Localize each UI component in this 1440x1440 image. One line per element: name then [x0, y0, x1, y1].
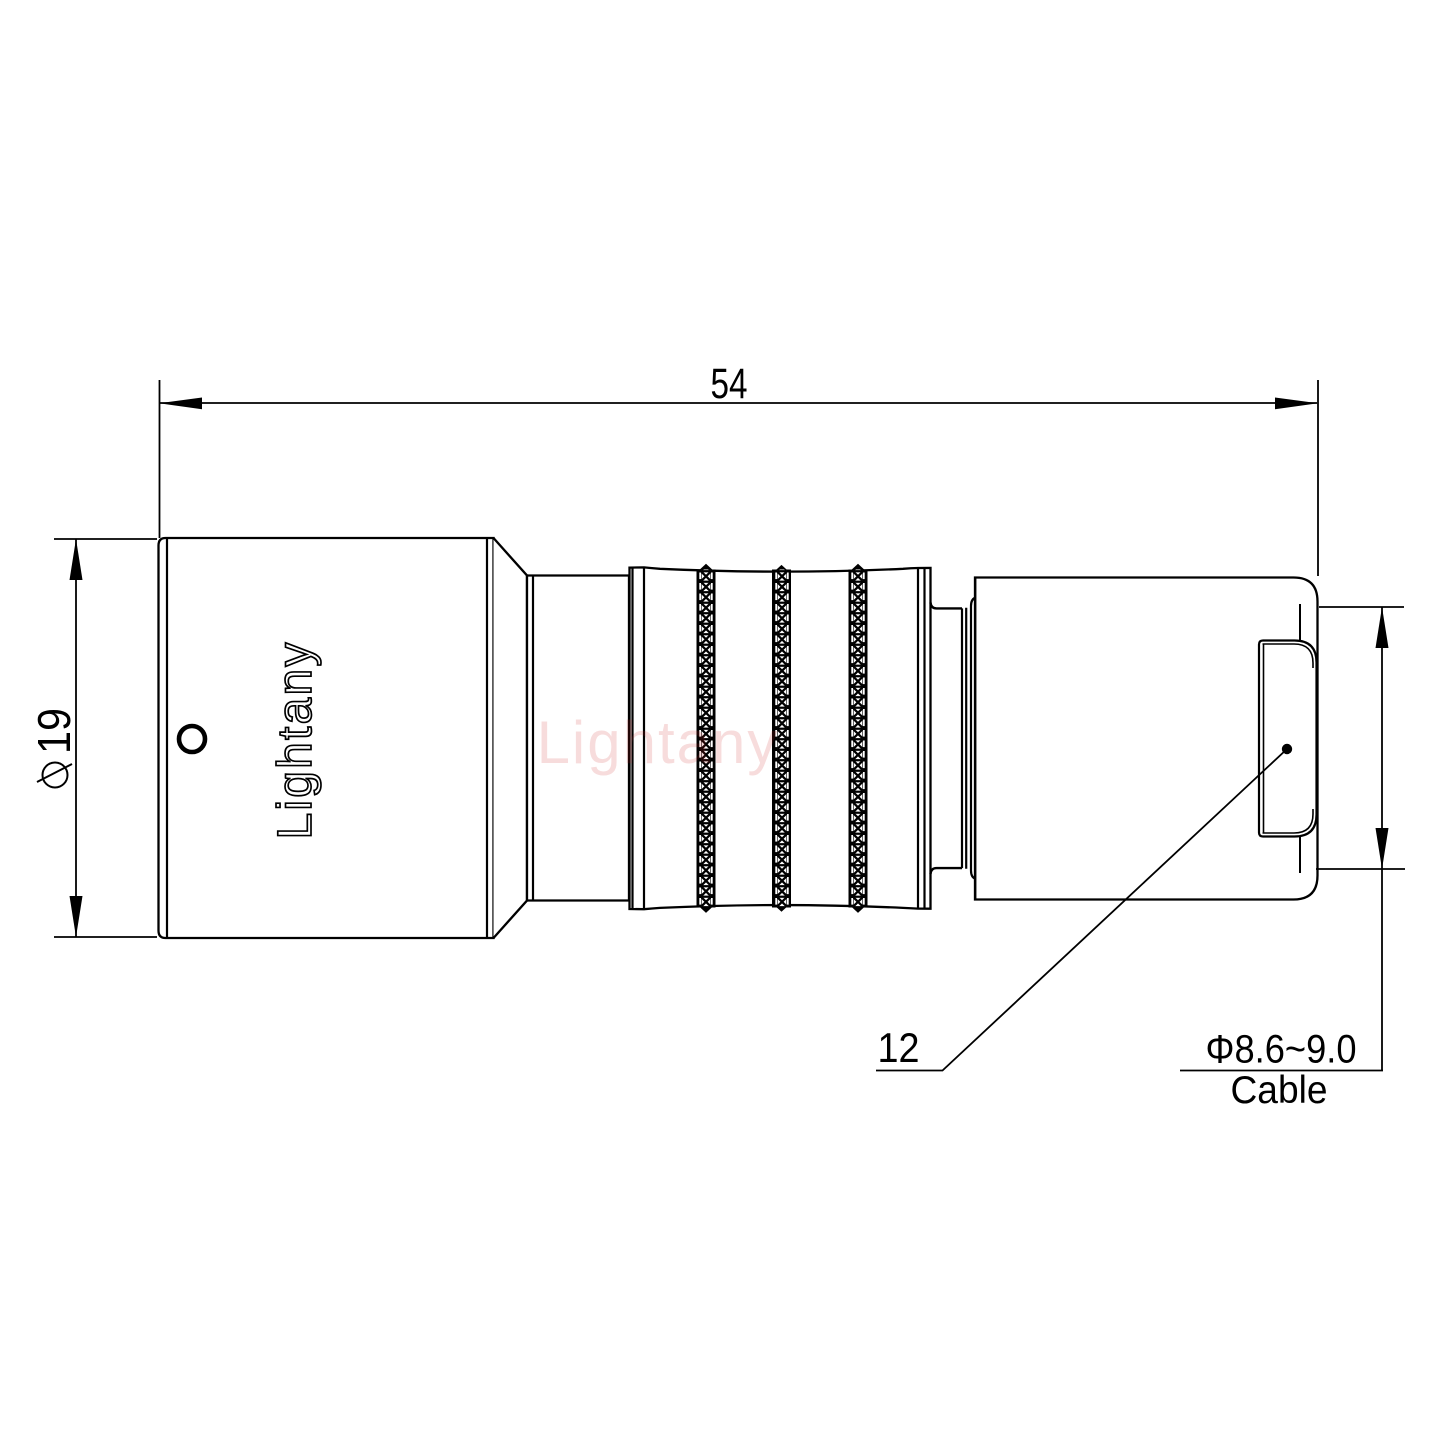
svg-text:Cable: Cable — [1231, 1069, 1328, 1112]
svg-text:Φ8.6~9.0: Φ8.6~9.0 — [1206, 1028, 1357, 1072]
svg-text:Lightany: Lightany — [269, 640, 322, 839]
svg-text:19: 19 — [28, 708, 80, 754]
svg-text:54: 54 — [711, 360, 748, 408]
svg-text:Lightany: Lightany — [537, 709, 780, 776]
svg-text:12: 12 — [878, 1024, 920, 1071]
